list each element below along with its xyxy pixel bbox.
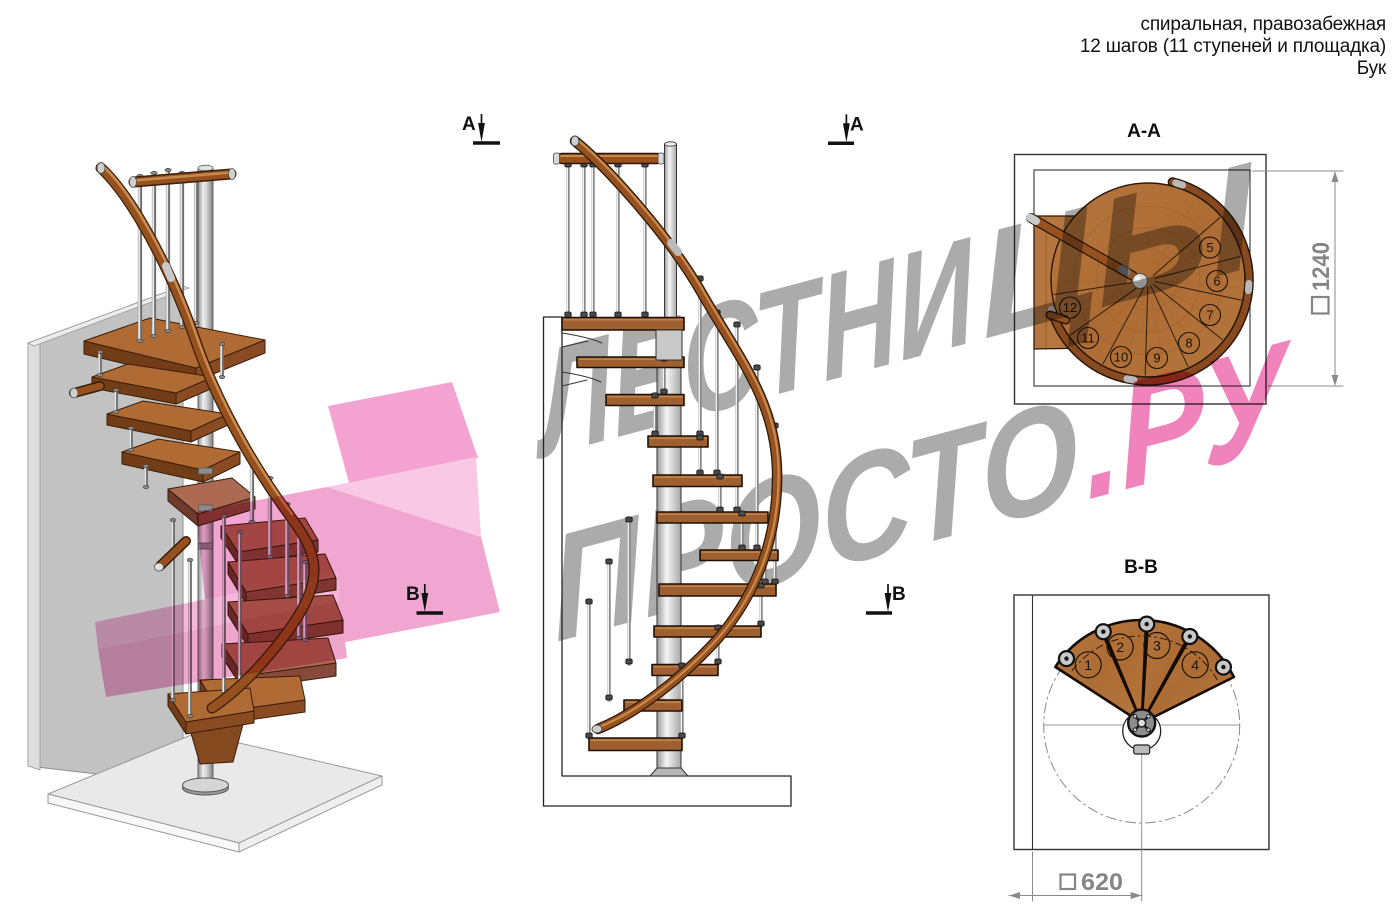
svg-text:12 шагов (11 ступеней и площад: 12 шагов (11 ступеней и площадка) xyxy=(1080,36,1386,57)
svg-text:2: 2 xyxy=(1116,639,1124,655)
svg-text:4: 4 xyxy=(1191,657,1199,673)
svg-text:1: 1 xyxy=(1084,657,1092,673)
svg-text:3: 3 xyxy=(1153,638,1161,654)
svg-text:Бук: Бук xyxy=(1357,58,1387,79)
svg-text:B: B xyxy=(892,584,906,605)
svg-text:A: A xyxy=(462,114,476,135)
svg-text:спиральная, правозабежная: спиральная, правозабежная xyxy=(1141,14,1386,35)
svg-text:620: 620 xyxy=(1081,869,1123,896)
svg-text:1240: 1240 xyxy=(1308,242,1335,291)
svg-text:A-A: A-A xyxy=(1127,121,1161,142)
svg-text:B: B xyxy=(406,584,420,605)
svg-text:A: A xyxy=(850,114,864,135)
svg-text:B-B: B-B xyxy=(1124,557,1158,578)
